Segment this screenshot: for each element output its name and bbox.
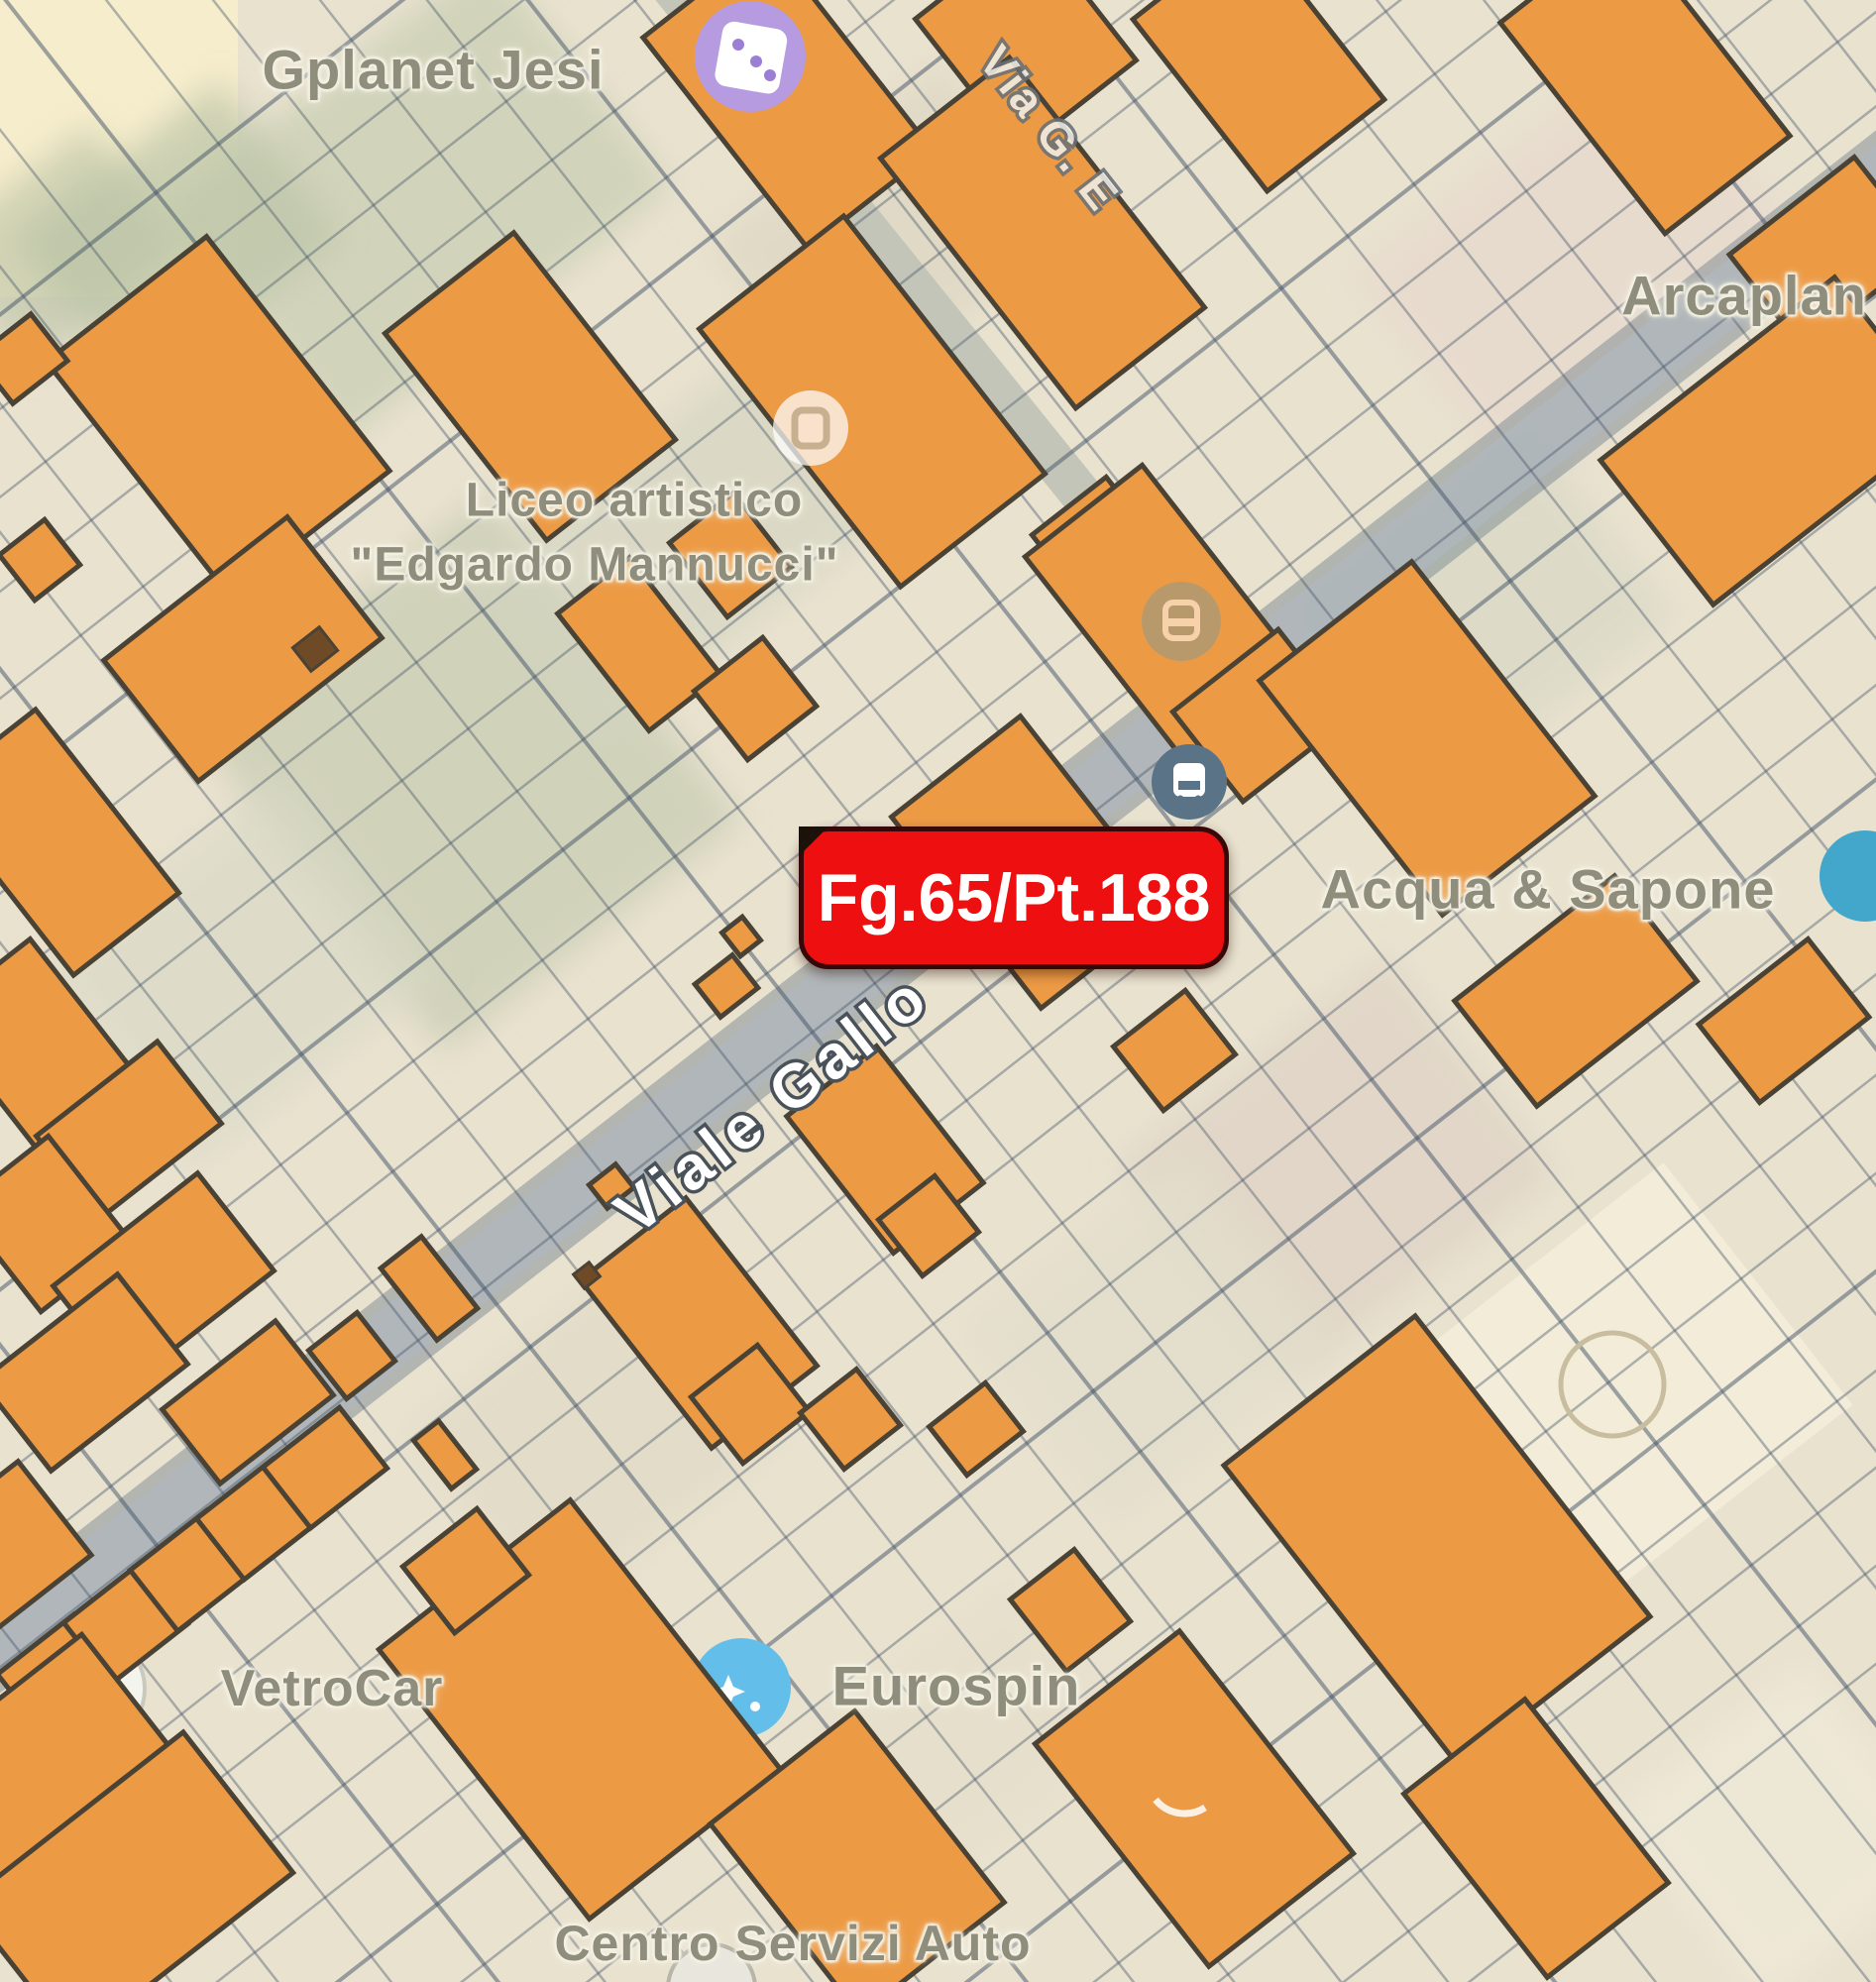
building [695, 955, 758, 1018]
parcel-badge-text: Fg.65/Pt.188 [818, 859, 1211, 936]
place-label-centro-servizi-auto: Centro Servizi Auto [554, 1915, 1031, 1972]
place-label-vetrocar: VetroCar [221, 1659, 444, 1718]
place-label-arcaplan: Arcaplan [1621, 264, 1867, 328]
badge-corner-notch [799, 826, 828, 856]
map-canvas[interactable]: Viale Gallo Via G. E Gplanet Jesi Arcapl… [0, 0, 1876, 1982]
gplanet-dice-icon[interactable] [695, 1, 806, 112]
building [0, 519, 80, 600]
parking-faded-icon[interactable] [773, 390, 848, 466]
building [1133, 0, 1384, 191]
building [800, 1369, 900, 1469]
acqua-sapone-marker-icon[interactable] [1820, 830, 1876, 922]
place-label-liceo-line1: Liceo artistico [466, 474, 803, 528]
parcel-badge: Fg.65/Pt.188 [799, 826, 1229, 969]
place-label-eurospin: Eurospin [832, 1654, 1081, 1718]
transit-stop-faded-icon[interactable] [1142, 582, 1221, 661]
place-label-liceo-line2: "Edgardo Mannucci" [351, 538, 839, 593]
building [1699, 939, 1869, 1103]
place-label-acqua-sapone: Acqua & Sapone [1321, 857, 1776, 922]
place-label-gplanet-jesi: Gplanet Jesi [262, 38, 604, 102]
